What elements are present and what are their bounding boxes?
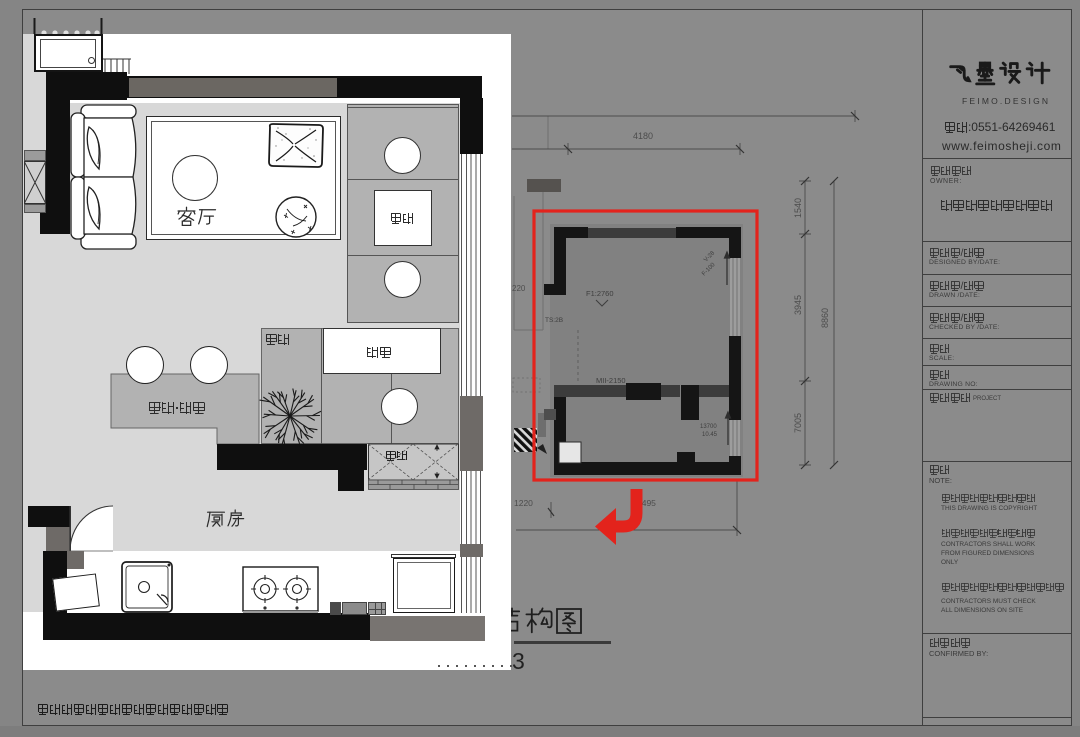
svg-text:MII-2150: MII-2150	[596, 376, 626, 385]
svg-text:3945: 3945	[793, 295, 803, 315]
svg-text:TS:2B: TS:2B	[545, 317, 563, 324]
svg-text:1540: 1540	[793, 198, 803, 218]
svg-text:4180: 4180	[633, 131, 653, 141]
svg-text:10.45: 10.45	[702, 432, 718, 438]
svg-text:8860: 8860	[820, 308, 830, 328]
svg-text:220: 220	[512, 284, 526, 293]
svg-text:1220: 1220	[514, 498, 533, 508]
svg-text:13700: 13700	[700, 424, 717, 430]
svg-text:7005: 7005	[793, 413, 803, 433]
svg-text:F1:2760: F1:2760	[586, 289, 614, 298]
